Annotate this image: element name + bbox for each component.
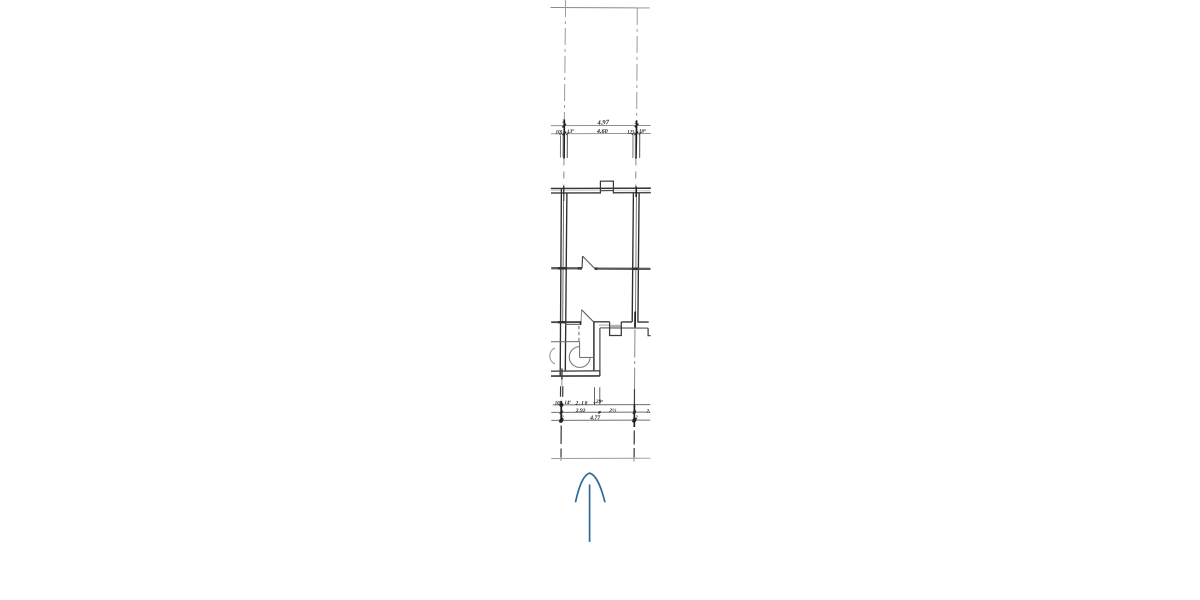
svg-text:2.92: 2.92: [575, 408, 586, 414]
svg-text:2½: 2½: [608, 407, 617, 414]
svg-text:2: 2: [635, 415, 638, 420]
svg-text:2,: 2,: [646, 409, 651, 414]
svg-text:295: 295: [595, 399, 603, 405]
svg-text:2.10: 2.10: [575, 400, 589, 406]
svg-text:2: 2: [561, 414, 564, 419]
svg-text:105: 105: [555, 129, 562, 136]
svg-text:4.97: 4.97: [596, 119, 609, 126]
svg-text:4.77: 4.77: [589, 416, 601, 422]
svg-text:4.60: 4.60: [596, 128, 608, 135]
